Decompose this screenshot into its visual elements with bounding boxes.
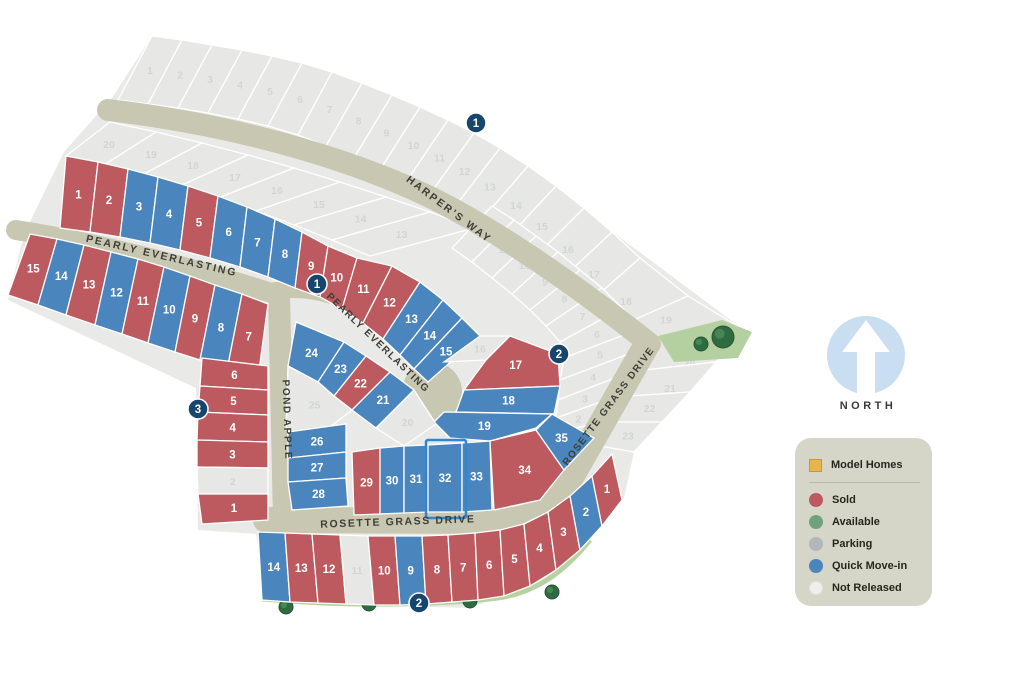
marker-number: 2 [416, 598, 422, 610]
legend-label-available: Available [832, 516, 880, 528]
legend-label-not_released: Not Released [832, 582, 902, 594]
tree-icon [715, 329, 725, 339]
legend-item-quick: Quick Move-in [809, 555, 920, 577]
status-dot-parking [809, 537, 823, 551]
map-marker-2[interactable]: 2 [549, 344, 569, 364]
compass-label: NORTH [840, 400, 897, 412]
lot-south_band-8[interactable] [422, 535, 452, 604]
lot-interior-28[interactable] [288, 478, 348, 510]
lot-south_band-6[interactable] [475, 530, 504, 600]
tree-icon [696, 339, 702, 345]
legend-item-not_released: Not Released [809, 577, 920, 599]
site-plan-page: 1234567891011121314151617181920212223201… [0, 0, 1024, 683]
tree-icon [547, 587, 553, 593]
legend-label-parking: Parking [832, 538, 872, 550]
lot-rosette_row-30[interactable] [380, 446, 404, 514]
legend-item-parking: Parking [809, 533, 920, 555]
marker-number: 1 [314, 279, 321, 291]
legend-label-sold: Sold [832, 494, 856, 506]
marker-number: 2 [556, 349, 562, 361]
map-marker-3[interactable]: 3 [188, 399, 208, 419]
map-marker-2[interactable]: 2 [409, 593, 429, 613]
lot-pond_row-3[interactable] [197, 440, 268, 468]
map-marker-1[interactable]: 1 [466, 113, 486, 133]
lot-rosette_row-31[interactable] [404, 445, 428, 513]
status-dot-not_released [809, 581, 823, 595]
lot-pond_row-2[interactable] [197, 467, 268, 494]
lot-interior-27[interactable] [288, 452, 346, 482]
lot-south_band-7[interactable] [448, 533, 478, 602]
legend-item-sold: Sold [809, 489, 920, 511]
legend-label-quick: Quick Move-in [832, 560, 907, 572]
lot-pond_row-4[interactable] [197, 412, 268, 442]
tree-icon [281, 602, 287, 608]
lot-rosette_row-29[interactable] [352, 448, 380, 515]
lot-rosette_row-32[interactable] [428, 443, 462, 512]
status-dot-available [809, 515, 823, 529]
lot-pond_row-1[interactable] [198, 494, 268, 524]
north-compass: NORTH [827, 316, 905, 412]
lot-north_row-18[interactable] [456, 386, 560, 414]
legend-item-model-homes: Model Homes [809, 452, 920, 478]
legend-item-available: Available [809, 511, 920, 533]
marker-number: 3 [195, 404, 201, 416]
legend-divider [809, 482, 920, 483]
status-dot-quick [809, 559, 823, 573]
model-homes-swatch-icon [809, 459, 822, 472]
status-dot-sold [809, 493, 823, 507]
legend: Model Homes SoldAvailableParkingQuick Mo… [795, 438, 932, 606]
legend-label-model-homes: Model Homes [831, 459, 903, 471]
map-marker-1[interactable]: 1 [307, 274, 327, 294]
marker-number: 1 [473, 118, 480, 130]
